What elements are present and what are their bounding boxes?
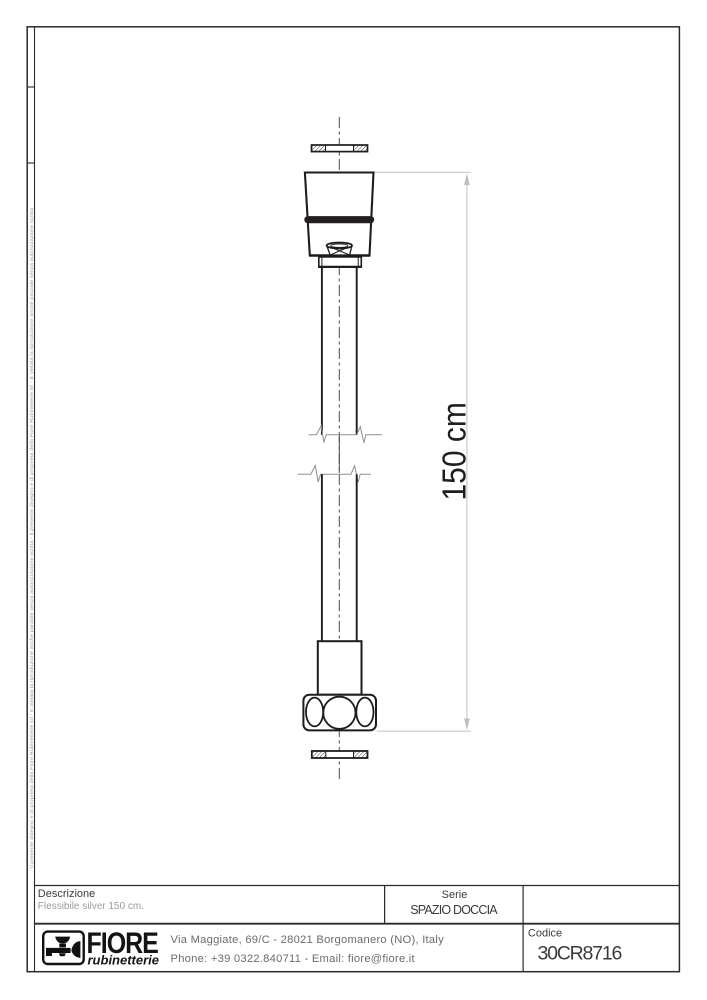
svg-text:Phone: +39 0322.840711 - Email: Phone: +39 0322.840711 - Email: fiore@fi…: [171, 953, 416, 965]
svg-text:SPAZIO DOCCIA: SPAZIO DOCCIA: [410, 903, 498, 917]
svg-text:150 cm: 150 cm: [435, 402, 473, 500]
svg-text:Serie: Serie: [442, 889, 468, 901]
svg-text:Flessibile silver 150 cm.: Flessibile silver 150 cm.: [38, 901, 144, 912]
svg-text:30CR8716: 30CR8716: [538, 942, 622, 964]
svg-text:Codice: Codice: [528, 928, 562, 940]
svg-text:Via Maggiate, 69/C - 28021 Bor: Via Maggiate, 69/C - 28021 Borgomanero (…: [171, 934, 445, 946]
svg-text:rubinetterie: rubinetterie: [88, 953, 160, 968]
svg-text:Descrizione: Descrizione: [38, 888, 95, 900]
svg-text:Il presente disegno e di propr: Il presente disegno e di proprieta della…: [29, 207, 34, 868]
